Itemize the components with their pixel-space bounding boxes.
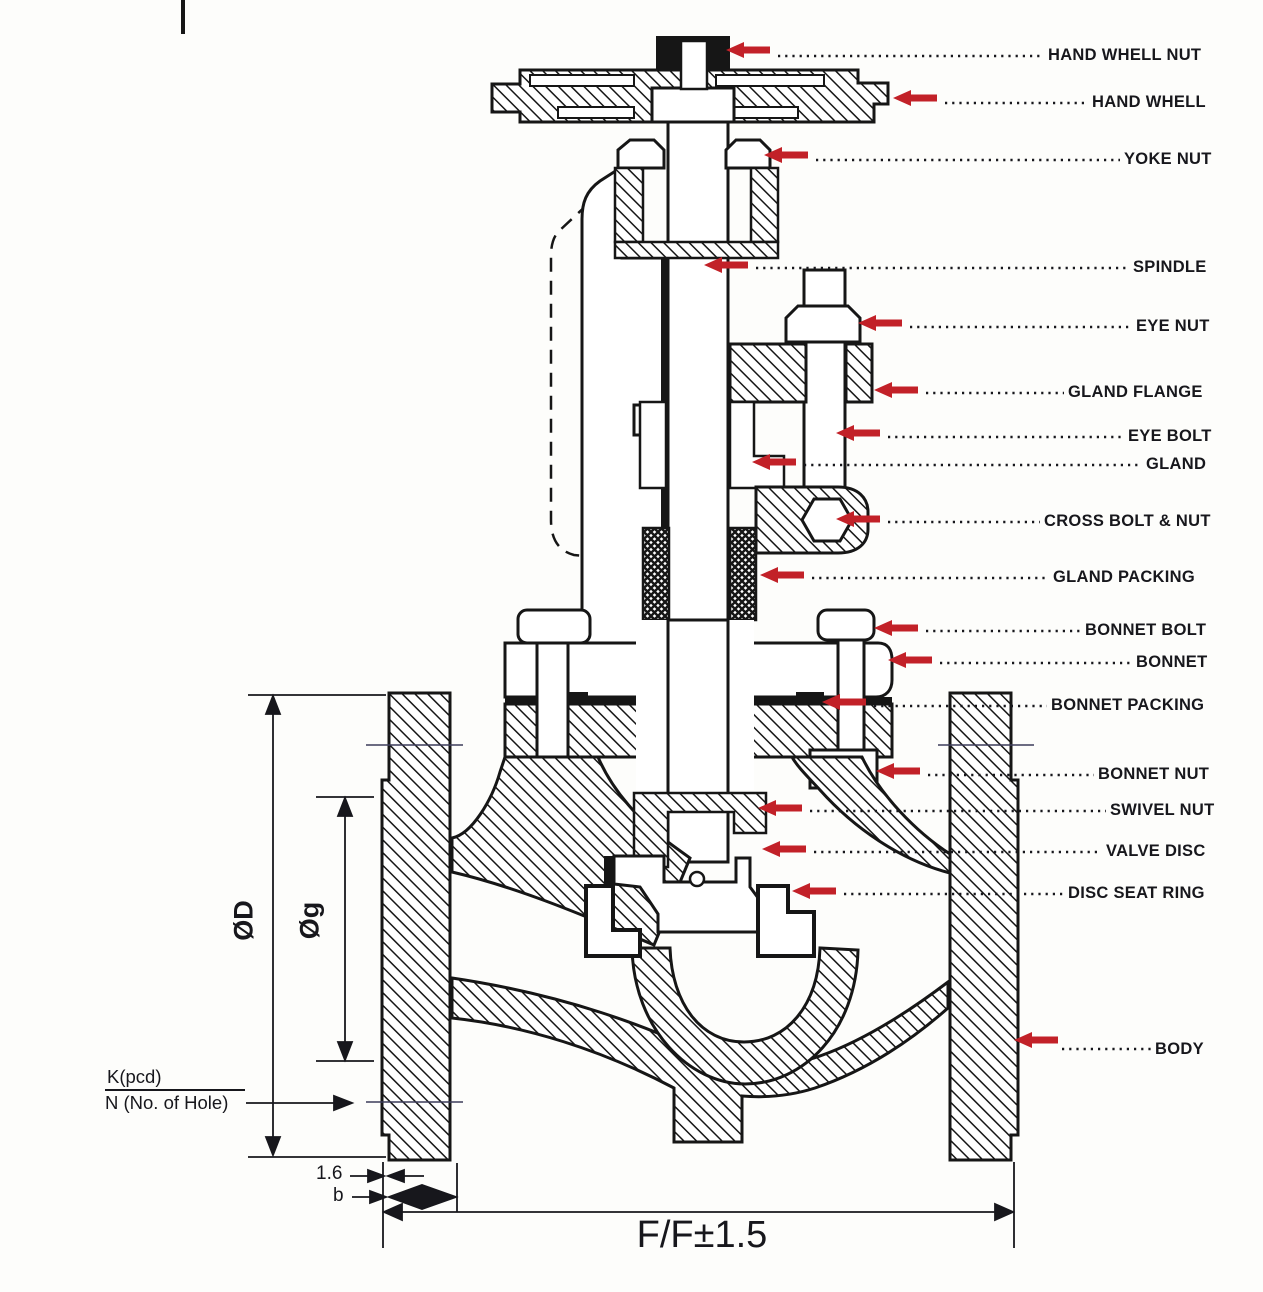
label-bonnet-nut: BONNET NUT: [1098, 763, 1209, 785]
valve-sectional-drawing: HAND WHELL NUT HAND WHELL YOKE NUT SPIND…: [0, 0, 1263, 1292]
dim-outer-diameter: ØD: [229, 889, 260, 953]
label-eye-bolt: EYE BOLT: [1128, 425, 1212, 447]
label-bonnet-bolt: BONNET BOLT: [1085, 619, 1206, 641]
dim-raised-face: 1.6: [316, 1163, 342, 1185]
label-spindle: SPINDLE: [1133, 256, 1207, 278]
label-disc-seat-ring: DISC SEAT RING: [1068, 882, 1205, 904]
label-yoke-nut: YOKE NUT: [1124, 148, 1212, 170]
dim-pcd-block: K(pcd) N (No. of Hole): [105, 1066, 245, 1114]
dim-pcd: K(pcd): [105, 1066, 245, 1091]
label-valve-disc: VALVE DISC: [1106, 840, 1206, 862]
label-cross-bolt-nut: CROSS BOLT & NUT: [1044, 510, 1211, 532]
dim-flange-thickness: b: [333, 1185, 344, 1207]
label-gland: GLAND: [1146, 453, 1206, 475]
dim-gasket-diameter: Øg: [295, 889, 326, 953]
label-body: BODY: [1155, 1038, 1204, 1060]
label-hand-whell: HAND WHELL: [1092, 91, 1206, 113]
label-eye-nut: EYE NUT: [1136, 315, 1210, 337]
right-flange-drawing: [950, 693, 1018, 1160]
label-swivel-nut: SWIVEL NUT: [1110, 799, 1214, 821]
dim-holes: N (No. of Hole): [105, 1091, 245, 1114]
dim-face-to-face: F/F±1.5: [552, 1214, 852, 1257]
label-hand-whell-nut: HAND WHELL NUT: [1048, 44, 1201, 66]
label-bonnet: BONNET: [1136, 651, 1207, 673]
left-flange-drawing: [382, 693, 450, 1160]
gland-flange-drawing: [730, 344, 872, 402]
label-bonnet-packing: BONNET PACKING: [1051, 694, 1204, 716]
spindle-lower-drawing: [668, 620, 728, 862]
dimension-lines: [246, 695, 1014, 1248]
label-gland-flange: GLAND FLANGE: [1068, 381, 1203, 403]
label-gland-packing: GLAND PACKING: [1053, 566, 1195, 588]
